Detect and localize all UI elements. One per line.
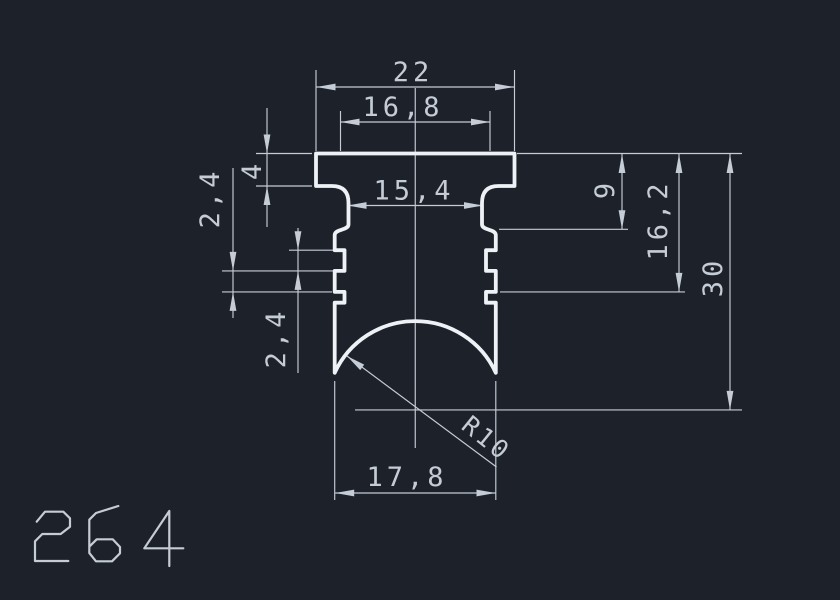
part-number-glyphs bbox=[35, 506, 183, 566]
dim-label-flange-thickness: 4 bbox=[237, 160, 268, 180]
glyph-2 bbox=[35, 512, 70, 561]
dim-label-groove-step-lower: 2,4 bbox=[261, 308, 292, 369]
dim-label-overall-width: 22 bbox=[393, 57, 434, 88]
dim-label-overall-height: 30 bbox=[698, 257, 729, 298]
glyph-6 bbox=[89, 506, 120, 561]
glyph-4 bbox=[144, 511, 183, 566]
dim-label-flange-width: 16,8 bbox=[362, 92, 443, 123]
radius-leader-arrow bbox=[347, 356, 364, 370]
dim-label-bottom-width: 17,8 bbox=[366, 462, 447, 493]
dim-label-radius: R10 bbox=[456, 410, 516, 467]
cad-drawing-canvas: 264 bbox=[0, 0, 840, 600]
dim-label-neck-width: 15,4 bbox=[373, 176, 454, 207]
dim-label-groove-height: 16,2 bbox=[643, 179, 674, 260]
technical-drawing: 22 16,8 15,4 17,8 4 2,4 2,4 9 16,2 30 R1… bbox=[0, 0, 840, 600]
dim-label-groove-step-upper: 2,4 bbox=[195, 168, 226, 229]
dim-label-shoulder-height: 9 bbox=[590, 179, 621, 199]
